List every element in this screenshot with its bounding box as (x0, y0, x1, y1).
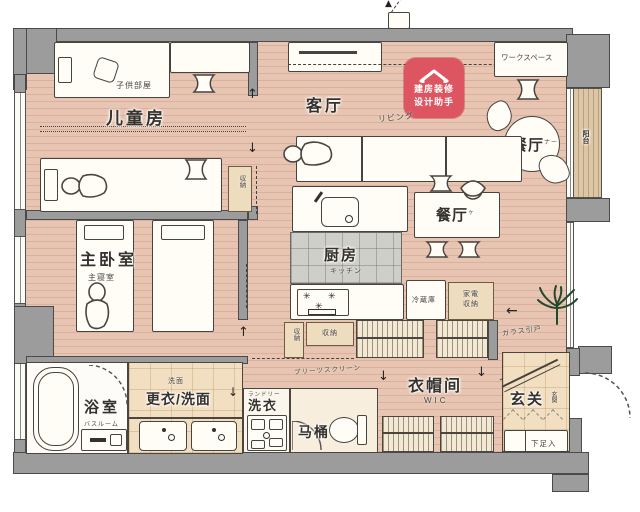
exterior-wall-bottomright-stub (552, 474, 589, 492)
sink-basin (321, 197, 359, 227)
dining2-sub: ヶ (468, 210, 475, 216)
room-sublabel-entry: 玄関 (549, 391, 558, 403)
room-label-laundry: 洗衣 (248, 395, 278, 414)
storage-box: 収納 (306, 322, 354, 346)
wic-arrow-down: ↓ (378, 370, 389, 383)
badge-line1: 建房装修 (414, 84, 454, 96)
room-sublabel-dressing: 洗面 (168, 376, 184, 386)
vent-arrow-icon: ▲ (385, 0, 392, 9)
appliance-cabinet: 家電 収納 (448, 282, 494, 320)
badge-line2: 设计助手 (414, 97, 454, 109)
exterior-wall-top (28, 28, 573, 42)
bed (152, 220, 214, 332)
drain-icon (345, 215, 353, 223)
room-label-entry: 玄关 (510, 388, 544, 409)
dining1-sub: ナー (544, 140, 558, 146)
window-bath (14, 356, 26, 440)
dining-stool (428, 174, 454, 194)
room-label-kitchen: 厨房 (324, 244, 358, 265)
grill (308, 309, 336, 315)
shoe-cabinet: 下足入 (504, 430, 568, 452)
sliding-door-arrow-down: ↓ (247, 142, 258, 155)
fixture-label-storage: 収納 (290, 328, 300, 341)
desk-stool (190, 73, 218, 95)
room-label-dressing: 更衣/洗面 (146, 389, 211, 409)
toilet (329, 417, 359, 443)
room-label-living: 客厅 (306, 92, 344, 116)
vent (388, 12, 410, 29)
person-figure (61, 169, 109, 203)
room-label-workspace: ワークスペース (501, 52, 552, 63)
room-label-dining2: 餐厅ヶ (436, 204, 475, 225)
closet-rail (382, 416, 434, 452)
room-label-master: 主卧室 (80, 246, 137, 270)
burner-icon: ✳ (328, 291, 336, 302)
fixture-label-appliance2: 収納 (449, 299, 493, 309)
storage-box: 収納 (284, 322, 304, 358)
exterior-wall-bottom (13, 452, 589, 474)
room-sublabel-kitchen: キッチン (330, 266, 362, 276)
kitchen-island (292, 186, 408, 232)
side-stool (182, 158, 210, 182)
exterior-wall-balcony-bottom (566, 198, 610, 222)
window-kids (14, 92, 26, 210)
desk (170, 42, 250, 73)
dining-stool (424, 240, 450, 260)
toilet-floor (290, 388, 378, 453)
tv-cabinet (288, 42, 382, 72)
sliding-door-arrow-up: ↑ (247, 88, 258, 101)
kitchen-counter: ✳ ✳ ✳ (290, 284, 404, 320)
burner-icon: ✳ (303, 291, 311, 302)
room-sublabel-bath: バスルーム (84, 419, 119, 428)
room-label-wic: 衣帽间 (408, 372, 462, 396)
fridge: 冷蔵庫 (406, 280, 446, 320)
room-sublabel-master: 主寝室 (88, 272, 115, 283)
room-label-toilet: 马桶 (298, 422, 330, 442)
person-figure (80, 282, 114, 332)
exterior-wall-right-pillar (578, 346, 612, 374)
toilet-tank (357, 415, 367, 445)
master-door-arrow: ↑ (238, 326, 249, 339)
workspace-desk: ワークスペース (494, 42, 568, 77)
room-label-bath: 浴室 (84, 396, 120, 417)
vanity (81, 429, 127, 451)
washer (247, 415, 287, 451)
fixture-label-storage: 収納 (307, 328, 353, 338)
house-icon (417, 68, 451, 83)
cabinet-door-track (256, 166, 257, 214)
closet-rail (436, 320, 488, 358)
fixture-label-appliance1: 家電 (449, 289, 493, 299)
fixture-label-fridge: 冷蔵庫 (412, 295, 436, 305)
workspace-stool (514, 78, 542, 102)
master-door-track (246, 264, 247, 308)
room-label-kids: 儿童房 (106, 104, 166, 129)
plant-icon (534, 284, 580, 328)
fixture-label-storage: 収納 (236, 175, 246, 188)
floor-plan: 阳台 ▲ ↑ ↓ ↑ (0, 0, 640, 512)
sink (191, 421, 237, 451)
vent-arrow-line (391, 0, 402, 13)
window-balcony-door (566, 88, 574, 198)
bathtub (33, 367, 79, 451)
storage-cabinet: 収納 (228, 166, 252, 212)
person-figure (456, 168, 490, 204)
dressing-arrow-down: ↓ (228, 386, 238, 398)
person-figure (283, 137, 335, 171)
room-sublabel-wic: WIC (424, 396, 449, 405)
fixture-label-shoe: 下足入 (531, 438, 557, 449)
closet-rail (440, 416, 494, 452)
pleats-screen-line (252, 358, 354, 359)
window-master (14, 236, 26, 304)
logo-badge: 建房装修 设计助手 (404, 58, 464, 118)
corridor-arrow-left: ← (506, 304, 518, 318)
sink (139, 421, 187, 451)
closet-rail (356, 320, 424, 358)
bed (54, 42, 170, 98)
room-sublabel-kids: 子供部屋 (116, 80, 152, 91)
dining-stool (456, 240, 482, 260)
entry-door-arc (584, 372, 632, 420)
exterior-wall-topright (566, 34, 610, 88)
dining2-text: 餐厅 (436, 207, 468, 224)
closet-guide-line2 (40, 131, 246, 132)
stove: ✳ ✳ ✳ (297, 289, 349, 316)
wall-wic-entry (488, 320, 498, 360)
room-label-balcony: 阳台 (580, 130, 590, 144)
wic-arrow-down: ↓ (476, 366, 487, 379)
